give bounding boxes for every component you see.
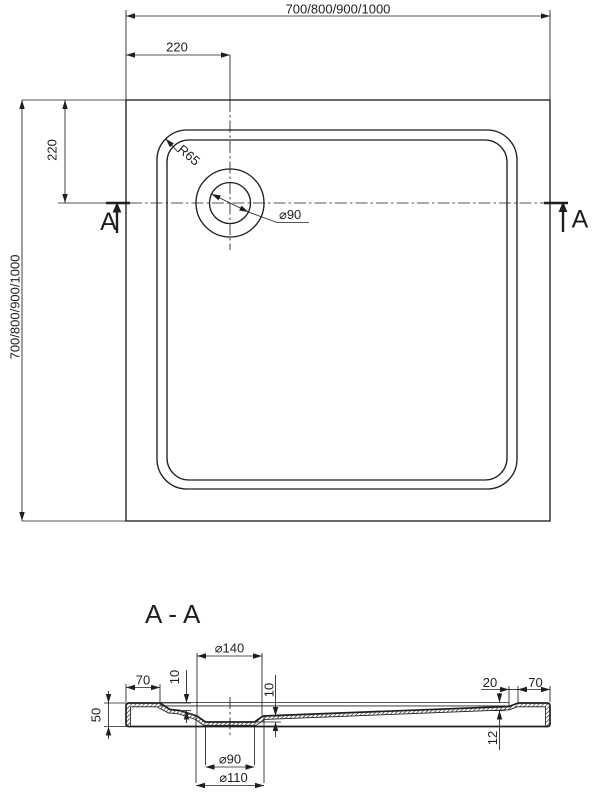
dim-drain-offset-y-label: 220 [45, 139, 60, 161]
dim-step-right-group: 20 [481, 675, 527, 690]
section-title: A-A [145, 599, 206, 629]
drawing-canvas: 700/800/900/1000 700/800/900/1000 220 22… [0, 0, 609, 792]
corner-radius-label: R65 [175, 142, 203, 169]
far-rim-edges [160, 703, 509, 706]
dim-drain-hole-label: ⌀90 [219, 752, 241, 767]
section-marker-left-group: A [100, 202, 121, 236]
dim-drain-offset-y-group: 220 [45, 100, 66, 203]
dim-height-label: 700/800/900/1000 [8, 255, 23, 360]
dim-rim-right-label: 70 [528, 675, 542, 690]
dim-total-height-group: 50 [89, 691, 109, 739]
dim-total-height-label: 50 [89, 708, 104, 722]
dim-recess-depth-label: 10 [262, 683, 277, 697]
dim-edge-height-group: 12 [485, 693, 500, 750]
dim-flange-diameter-group: ⌀110 [196, 770, 264, 786]
dim-drain-offset-x-group: 220 [126, 40, 230, 56]
dim-step-left-label: 10 [167, 670, 182, 684]
corner-radius-leader: R65 [166, 139, 203, 169]
dim-edge-height-label: 12 [485, 731, 500, 745]
dim-height-group: 700/800/900/1000 [8, 100, 23, 521]
basin-outer-edge [157, 130, 517, 489]
section-marker-right-group: A [559, 202, 589, 234]
dim-drain-hole-group: ⌀90 [206, 752, 255, 768]
technical-drawing: 700/800/900/1000 700/800/900/1000 220 22… [0, 0, 609, 792]
dim-flange-diameter-label: ⌀110 [219, 770, 248, 785]
dim-rim-right-group: 70 [518, 675, 550, 690]
dim-width-label: 700/800/900/1000 [286, 2, 391, 17]
section-marker-left-label: A [100, 208, 117, 236]
dim-recess-diameter-group: ⌀140 [197, 641, 262, 657]
dim-step-right-label: 20 [483, 675, 497, 690]
top-view: 700/800/900/1000 700/800/900/1000 220 22… [8, 2, 589, 522]
dim-recess-diameter-label: ⌀140 [215, 641, 245, 656]
dim-rim-left-label: 70 [136, 673, 150, 688]
dim-drain-offset-x-label: 220 [166, 40, 188, 55]
section-marker-right-label: A [572, 206, 589, 234]
section-view: A-A ⌀140 70 10 [89, 599, 551, 786]
basin-inner-edge [167, 140, 507, 480]
extension-lines-top-view [22, 10, 550, 521]
dim-width-group: 700/800/900/1000 [126, 2, 550, 17]
dim-rim-left-group: 70 [126, 673, 160, 688]
drain-diameter-label: ⌀90 [279, 207, 301, 222]
